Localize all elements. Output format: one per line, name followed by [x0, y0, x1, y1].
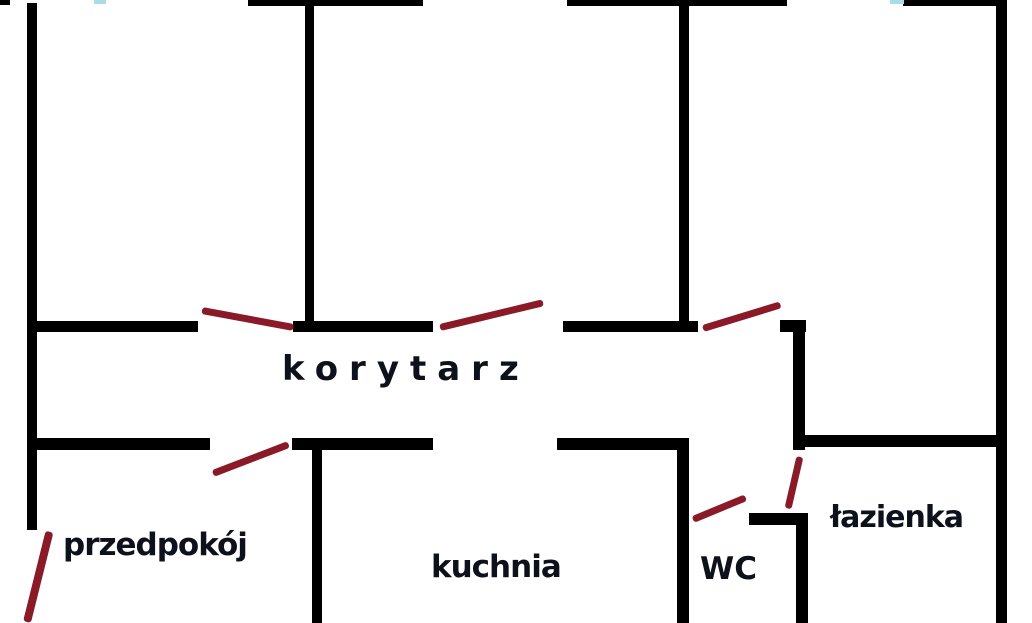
wall-wc-top	[749, 513, 801, 525]
wall-top-segment-right	[903, 0, 1005, 6]
wall-wc-lazienka-divider	[796, 513, 808, 623]
room-label-przedpokoj: przedpokój	[63, 530, 247, 561]
wall-top-segment-middle	[567, 0, 787, 6]
room-label-korytarz: korytarz	[282, 352, 530, 386]
room-label-kuchnia: kuchnia	[431, 552, 561, 583]
wall-corridor-right-vertical	[793, 320, 805, 450]
wall-corridor-top-b	[293, 321, 433, 332]
wall-corridor-top-a	[33, 321, 198, 332]
room-label-wc: WC	[700, 554, 757, 585]
wall-left-outer	[27, 3, 37, 530]
wall-divider-przedpokoj-kuchnia	[312, 438, 322, 623]
door-swing-room-middle	[439, 299, 544, 331]
window-tick-left	[94, 0, 106, 4]
wall-top-left-corner	[0, 0, 10, 5]
wall-corridor-top-c	[563, 321, 698, 332]
door-swing-przedpokoj	[212, 441, 290, 477]
wall-corridor-bottom-a	[28, 438, 210, 450]
door-swing-room-right	[702, 301, 782, 331]
wall-lazienka-top	[793, 435, 1007, 447]
wall-divider-room1-room2	[305, 0, 314, 332]
door-swing-lazienka	[785, 456, 804, 509]
window-tick-right	[890, 0, 904, 4]
door-swing-room-left	[201, 307, 294, 331]
wall-top-segment-left	[248, 0, 423, 6]
wall-divider-room2-room3	[679, 0, 689, 332]
floor-plan: korytarz przedpokój kuchnia WC łazienka	[0, 0, 1032, 623]
door-swing-wc	[692, 494, 747, 522]
wall-corridor-bottom-c	[557, 438, 689, 450]
room-label-lazienka: łazienka	[830, 503, 963, 533]
wall-wc-left	[677, 448, 689, 623]
wall-right-outer	[996, 0, 1007, 623]
door-swing-entrance	[23, 531, 53, 623]
